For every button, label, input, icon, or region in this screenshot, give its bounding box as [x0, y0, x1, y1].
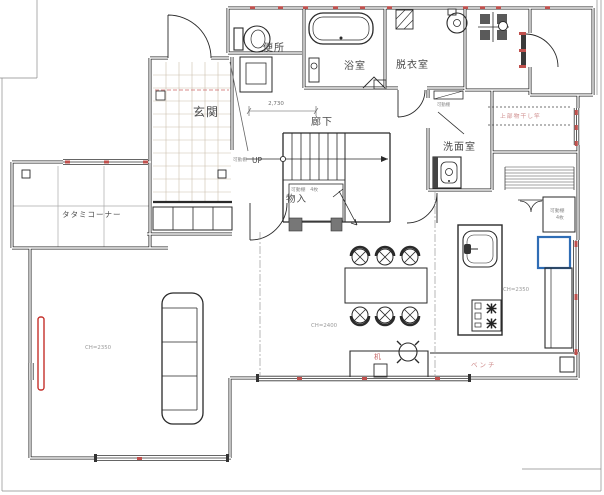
kitchen-sink: [463, 231, 497, 267]
label-shelf-storage: 可動棚 4枚: [291, 186, 318, 193]
hall-ldk-door: [407, 193, 437, 223]
pantry-shelf: [545, 268, 572, 348]
dimension-2730: [247, 106, 318, 116]
label-dimension: 2,730: [268, 101, 284, 107]
bathtub: [309, 13, 386, 89]
label-washroom: 洗面室: [443, 140, 476, 153]
dining-chairs: [351, 247, 419, 325]
refrigerator: [538, 237, 570, 268]
label-toilet: 便所: [263, 41, 285, 54]
staircase: [246, 133, 390, 231]
desk-set: [350, 341, 428, 377]
tv-unit: [38, 317, 44, 390]
label-ch-dining: CH=2400: [311, 323, 338, 329]
label-up: UP: [252, 156, 262, 165]
bench: [430, 353, 578, 372]
floor-plan: 便所 浴室 脱衣室 玄関 廊下 洗面室 物入 タタミコーナー UP 可動棚 2,…: [0, 0, 604, 495]
hall-living-door: [250, 203, 287, 240]
dining-table: [345, 268, 427, 303]
water-heater-icon: [396, 10, 413, 29]
label-bath: 浴室: [344, 59, 366, 72]
label-storage-closet: 物入: [286, 193, 307, 205]
label-dressing-room: 脱衣室: [396, 58, 429, 71]
walls: [12, 8, 593, 458]
label-corridor: 廊下: [311, 115, 333, 128]
label-bench: ベンチ: [471, 361, 497, 369]
deck-steps: [505, 167, 574, 190]
label-shelf-closet-count: 4枚: [556, 214, 564, 221]
kitchen-island: [458, 225, 502, 335]
label-shelf-up: 可動棚: [233, 156, 247, 163]
label-tatami-corner: タタミコーナー: [62, 210, 122, 219]
label-ch-living: CH=2350: [85, 345, 112, 351]
window-marks: [65, 6, 578, 460]
label-ch-kitchen: CH=2350: [503, 287, 530, 293]
label-entrance: 玄関: [193, 104, 219, 119]
desk-chair: [397, 341, 419, 363]
dining-set: [345, 247, 427, 325]
kitchen-closet: [518, 197, 575, 232]
label-shelf-closet: 可動棚: [550, 207, 565, 214]
label-laundry-pole: 上部物干し竿: [500, 112, 541, 120]
dressing-door: [398, 90, 425, 117]
kitchen-stove: [472, 300, 501, 331]
shoe-cabinet: [153, 207, 232, 230]
kitchen: [430, 197, 578, 372]
tatami-floor-grid: [12, 166, 150, 248]
toilet-fixture: [234, 26, 272, 92]
windows: [29, 108, 579, 462]
entrance-door-arc: [168, 15, 211, 58]
living-room: [38, 293, 203, 424]
floor-plan-drawing: 便所 浴室 脱衣室 玄関 廊下 洗面室 物入 タタミコーナー UP 可動棚 2,…: [0, 0, 604, 495]
label-shelf-washroom: 可動棚: [437, 101, 451, 108]
sofa: [162, 293, 203, 424]
label-desk: 机: [374, 352, 381, 361]
zone-lines: [260, 192, 435, 376]
stove-unit-icon: [478, 12, 509, 42]
top-right-room-door: [526, 34, 558, 67]
entrance-details: [22, 15, 248, 230]
sliding-door-posts: [289, 218, 342, 231]
entrance-tile-floor: [153, 62, 231, 203]
site-boundary: [0, 0, 601, 491]
